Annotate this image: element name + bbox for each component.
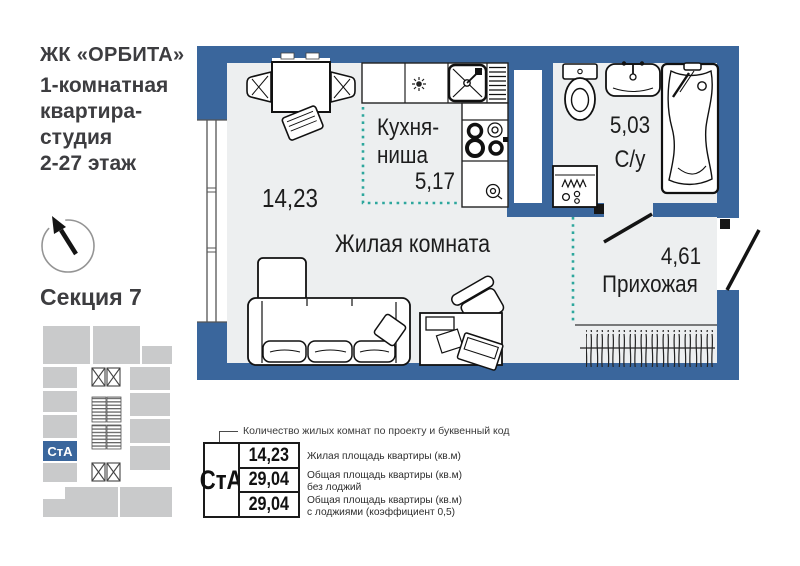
bathtub-icon <box>662 63 718 193</box>
legend-value-total-loggia: 29,04 <box>248 494 288 516</box>
ventilation-shaft <box>514 70 542 203</box>
burner-rosette-icon <box>412 77 426 91</box>
legend-value-box-total: 29,04 <box>238 467 300 494</box>
legend-value-box-living: 14,23 <box>238 442 300 469</box>
window <box>197 120 227 322</box>
legend-desc-total-loggia-line-1: Общая площадь квартиры (кв.м) <box>307 494 462 506</box>
hallway-area: 4,61 <box>653 243 708 271</box>
bathroom-name: С/у <box>602 146 657 174</box>
legend-value-total: 29,04 <box>248 469 288 491</box>
wardrobe-hangers <box>575 325 717 367</box>
legend-desc-total-line-2: без лоджий <box>307 481 462 493</box>
legend-value-box-total-loggia: 29,04 <box>238 491 300 518</box>
dining-chair-left <box>247 72 271 102</box>
section-minimap: СтА <box>28 316 178 522</box>
legend-connector-horizontal <box>219 431 238 432</box>
kitchen-sink-icon <box>449 65 486 101</box>
legend-value-living: 14,23 <box>248 445 288 467</box>
legend-note: Количество жилых комнат по проекту и бук… <box>243 425 509 437</box>
minimap-elevator-icons <box>92 368 120 481</box>
legend-desc-total-line-1: Общая площадь квартиры (кв.м) <box>307 469 462 481</box>
legend-desc-total: Общая площадь квартиры (кв.м) без лоджий <box>307 469 462 493</box>
hallway-name: Прихожая <box>598 271 701 299</box>
dining-chair-right <box>331 72 355 102</box>
apartment-type-line-4: 2-27 этаж <box>40 152 136 176</box>
minimap-stairs-icon <box>92 397 121 449</box>
legend-unit-code: СтА <box>200 465 243 496</box>
minimap-unit-highlight: СтА <box>43 441 77 461</box>
compass <box>28 188 118 283</box>
legend-desc-total-loggia-line-2: с лоджиями (коэффициент 0,5) <box>307 506 462 518</box>
washing-machine-icon <box>553 166 597 207</box>
bathroom-sink-icon <box>606 61 660 96</box>
kitchen-name-line-2: ниша <box>377 142 428 170</box>
kitchen-appliance-column <box>462 103 508 207</box>
legend-desc-total-loggia: Общая площадь квартиры (кв.м) с лоджиями… <box>307 494 462 518</box>
apartment-type-line-1: 1-комнатная <box>40 74 168 98</box>
floorplan-page: ЖК «ОРБИТА» 1-комнатная квартира- студия… <box>0 0 800 566</box>
legend-unit-code-box: СтА <box>203 442 240 518</box>
apartment-type-line-3: студия <box>40 126 112 150</box>
kitchen-counter <box>362 63 508 103</box>
kitchen-name-line-1: Кухня- <box>377 114 439 142</box>
bathroom-area: 5,03 <box>602 112 657 140</box>
toilet-icon <box>563 64 597 120</box>
section-title: Секция 7 <box>40 284 142 311</box>
living-room-name: Жилая комната <box>333 230 492 259</box>
legend-desc-living: Жилая площадь квартиры (кв.м) <box>307 450 461 462</box>
kitchen-area: 5,17 <box>399 168 455 196</box>
entrance-door <box>717 218 759 290</box>
living-room-area: 14,23 <box>238 183 341 214</box>
apartment-type-line-2: квартира- <box>40 100 142 124</box>
compass-gap <box>30 190 68 246</box>
desk-tray <box>426 317 454 330</box>
minimap-unit-code: СтА <box>47 444 73 459</box>
complex-title: ЖК «ОРБИТА» <box>40 44 184 67</box>
